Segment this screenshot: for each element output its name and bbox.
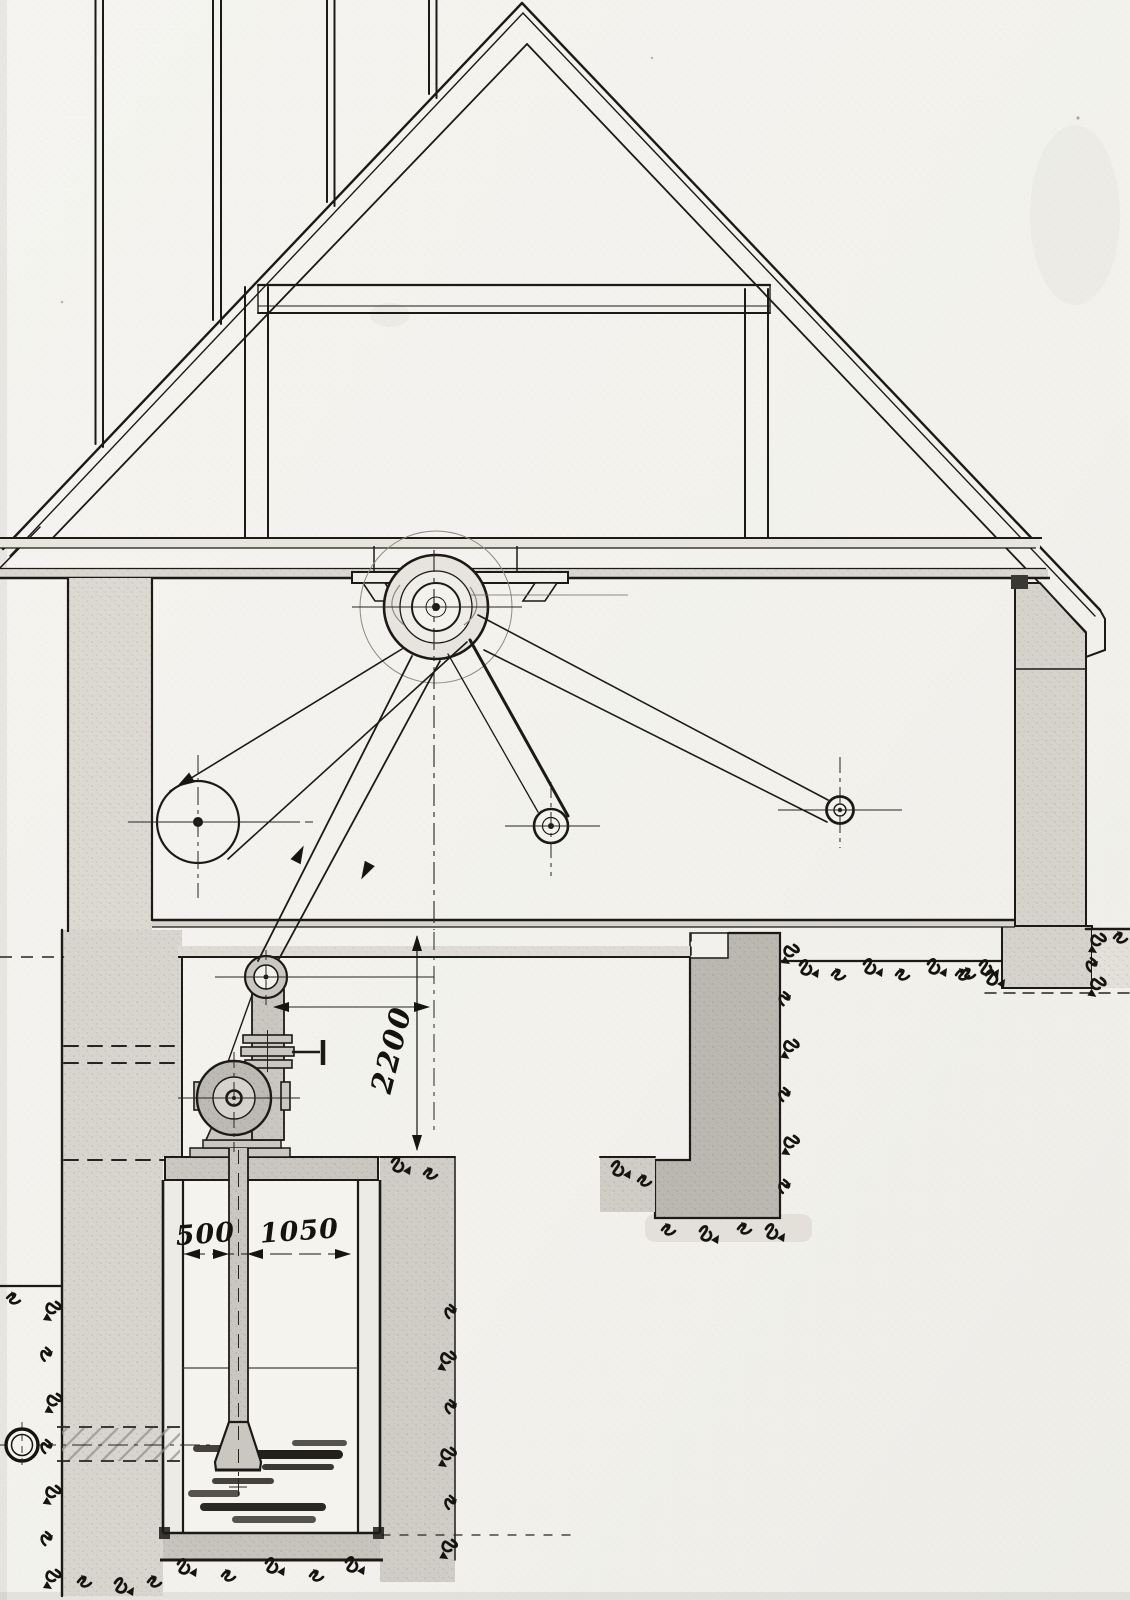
right-wall-footing xyxy=(985,926,1130,993)
technical-drawing-sheet: 2200 500 1050 xyxy=(0,0,1130,1600)
wall-plate-end xyxy=(1011,575,1028,589)
left-wall xyxy=(68,578,152,932)
dim-label-well-right: 1050 xyxy=(259,1213,340,1249)
well-bottom-slab xyxy=(159,1527,384,1560)
right-wall xyxy=(1011,575,1086,926)
well-lining-right xyxy=(358,1180,380,1533)
dim-label-well-left: 500 xyxy=(175,1217,236,1252)
